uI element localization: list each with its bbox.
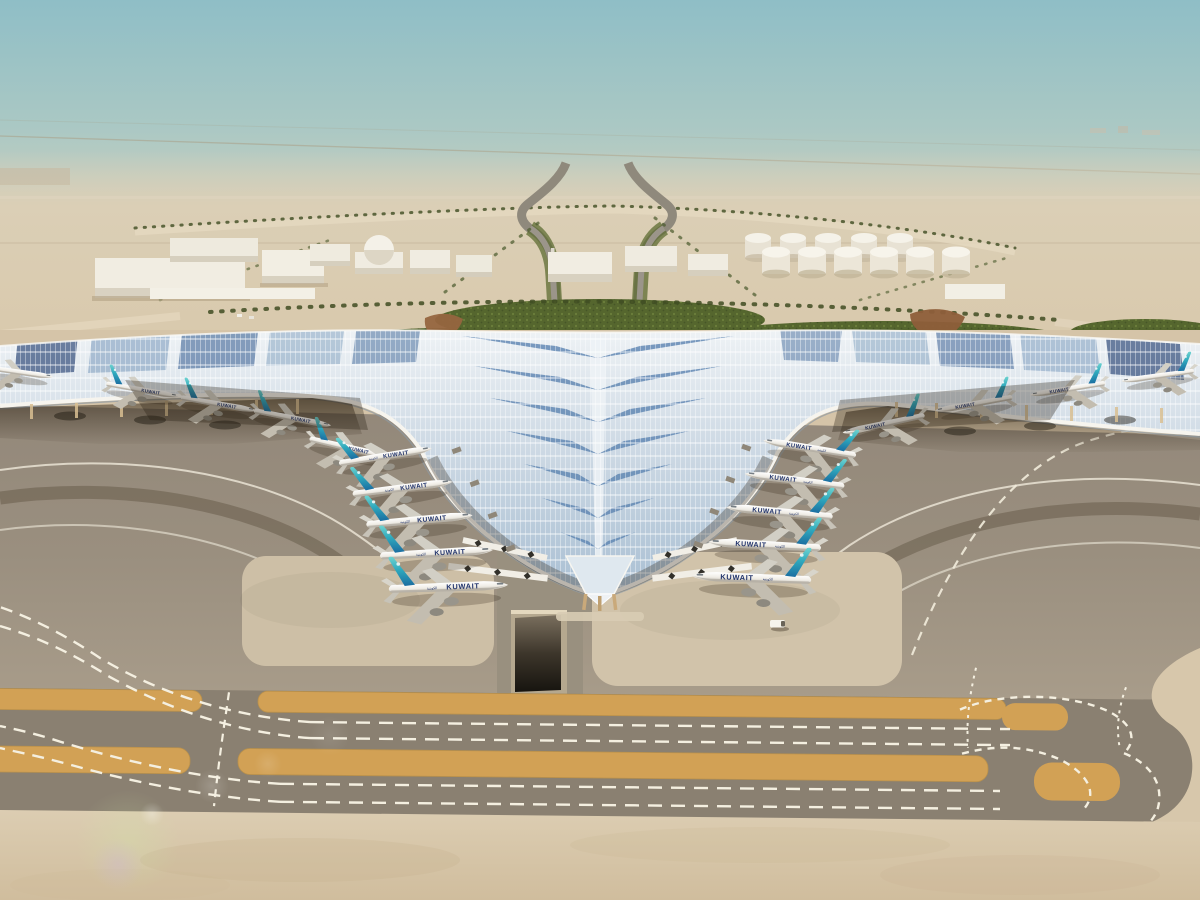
warehouse: [310, 244, 350, 266]
long-wall: [150, 288, 315, 299]
tank-farm-building: [945, 284, 1005, 299]
aircraft-title-arabic: الكويتية: [763, 577, 774, 581]
warehouse: [548, 252, 612, 282]
aircraft-title: KUWAIT: [720, 572, 754, 582]
warehouse: [625, 246, 677, 272]
entrance-pad: [556, 612, 644, 621]
airport-rendering: KUWAIT KUWAIT KUWAIT KUWAIT KUWAIT KUWAI…: [0, 0, 1200, 900]
desert-streak: [0, 196, 1200, 199]
car: [237, 314, 242, 317]
canopy-column: [598, 596, 602, 611]
warehouse: [456, 255, 492, 277]
car: [249, 316, 254, 319]
scene-canvas: KUWAIT KUWAIT KUWAIT KUWAIT KUWAIT KUWAI…: [0, 0, 1200, 900]
tunnel-ramp: [511, 610, 567, 696]
shadow-aircraft-silhouette: [1024, 422, 1056, 431]
shoulder-island: [1034, 762, 1120, 801]
aircraft-title: KUWAIT: [446, 581, 480, 591]
shadow-aircraft-silhouette: [1104, 416, 1136, 425]
shoulder-island: [1002, 703, 1068, 731]
aircraft-title-arabic: الكويتية: [775, 544, 785, 549]
warehouse: [688, 254, 728, 276]
warehouse: [410, 250, 450, 274]
shadow-aircraft-silhouette: [54, 412, 86, 421]
aircraft-title-arabic: الكويتية: [427, 586, 438, 590]
warehouse: [170, 238, 258, 262]
distant-facility: [0, 168, 70, 185]
shadow-aircraft-silhouette: [944, 427, 976, 436]
aircraft-title-arabic: الكويتية: [416, 552, 426, 557]
ramp-slope: [515, 615, 561, 692]
shoulder-strip: [0, 746, 190, 774]
foreground-concrete: [0, 810, 1200, 900]
